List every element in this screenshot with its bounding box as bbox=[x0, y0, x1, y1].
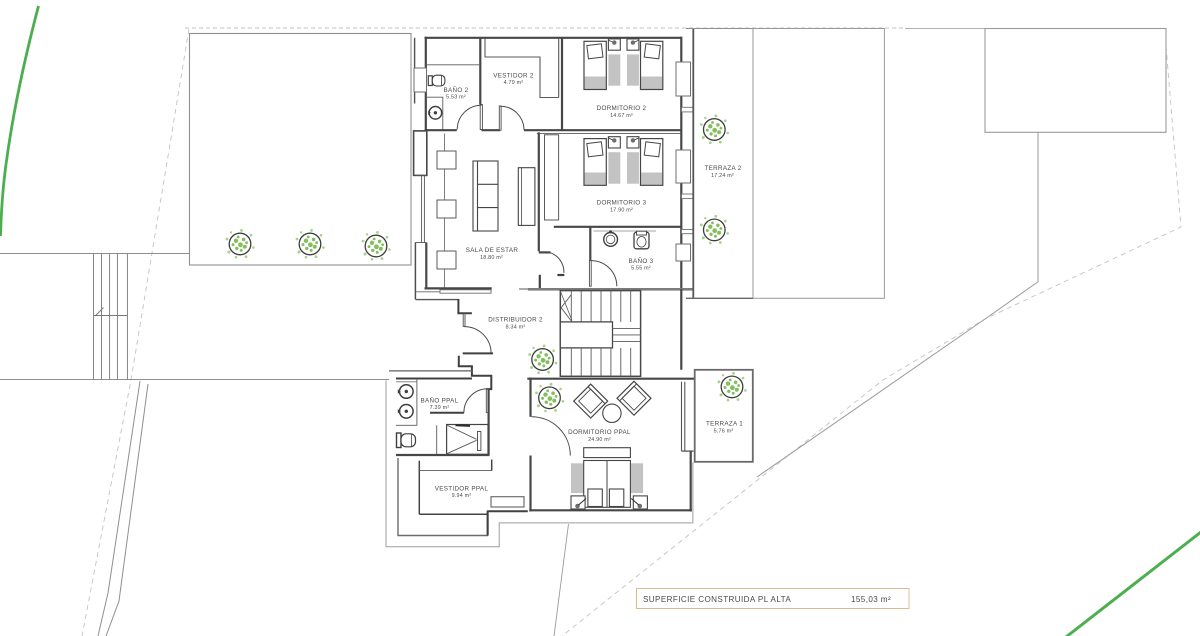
svg-text:SALA DE ESTAR: SALA DE ESTAR bbox=[466, 247, 519, 254]
svg-text:4.79 m²: 4.79 m² bbox=[504, 80, 524, 86]
svg-text:VESTIDOR 2: VESTIDOR 2 bbox=[493, 73, 534, 80]
svg-text:DORMITORIO 2: DORMITORIO 2 bbox=[597, 105, 647, 112]
svg-text:BAÑO 3: BAÑO 3 bbox=[629, 256, 654, 265]
svg-text:5.76 m²: 5.76 m² bbox=[714, 428, 734, 434]
svg-text:14.67 m²: 14.67 m² bbox=[610, 113, 633, 119]
svg-text:17.90 m²: 17.90 m² bbox=[610, 207, 633, 213]
svg-text:17.24 m²: 17.24 m² bbox=[711, 173, 734, 179]
svg-text:DISTRIBUIDOR 2: DISTRIBUIDOR 2 bbox=[488, 317, 543, 324]
svg-text:TERRAZA 1: TERRAZA 1 bbox=[706, 421, 743, 428]
svg-text:DORMITORIO PPAL: DORMITORIO PPAL bbox=[568, 429, 631, 436]
svg-text:24.90 m²: 24.90 m² bbox=[588, 437, 611, 443]
svg-text:VESTIDOR PPAL: VESTIDOR PPAL bbox=[435, 486, 489, 493]
svg-text:5.53 m²: 5.53 m² bbox=[446, 95, 466, 101]
svg-text:8.34 m²: 8.34 m² bbox=[506, 324, 526, 330]
svg-text:BAÑO PPAL: BAÑO PPAL bbox=[421, 396, 459, 405]
svg-text:5.55 m²: 5.55 m² bbox=[631, 266, 651, 272]
svg-text:TERRAZA 2: TERRAZA 2 bbox=[705, 165, 742, 172]
svg-text:BAÑO 2: BAÑO 2 bbox=[444, 85, 469, 94]
svg-text:155,03 m²: 155,03 m² bbox=[851, 595, 891, 604]
svg-text:9.94 m²: 9.94 m² bbox=[452, 493, 472, 499]
svg-text:DORMITORIO 3: DORMITORIO 3 bbox=[597, 200, 647, 207]
svg-text:18.80 m²: 18.80 m² bbox=[480, 255, 503, 261]
svg-text:7.39 m²: 7.39 m² bbox=[430, 405, 450, 411]
svg-text:SUPERFICIE CONSTRUIDA PL ALTA: SUPERFICIE CONSTRUIDA PL ALTA bbox=[643, 595, 791, 604]
